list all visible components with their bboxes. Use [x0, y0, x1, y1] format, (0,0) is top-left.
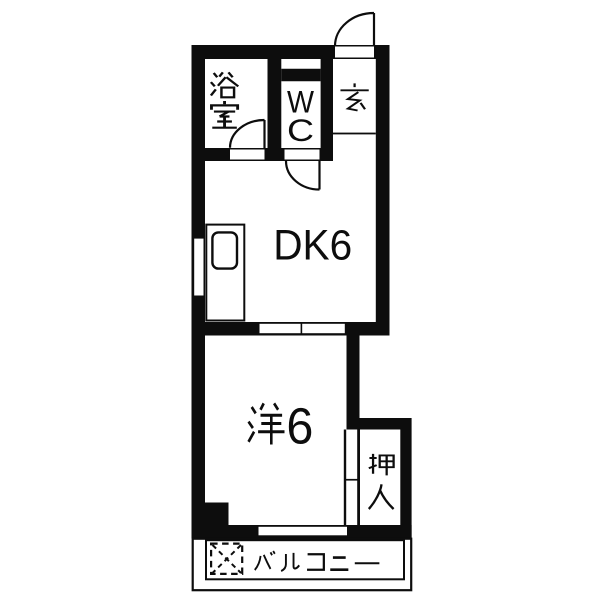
- svg-text:C: C: [287, 112, 314, 148]
- svg-text:DK6: DK6: [273, 222, 352, 269]
- svg-text:6: 6: [286, 398, 313, 455]
